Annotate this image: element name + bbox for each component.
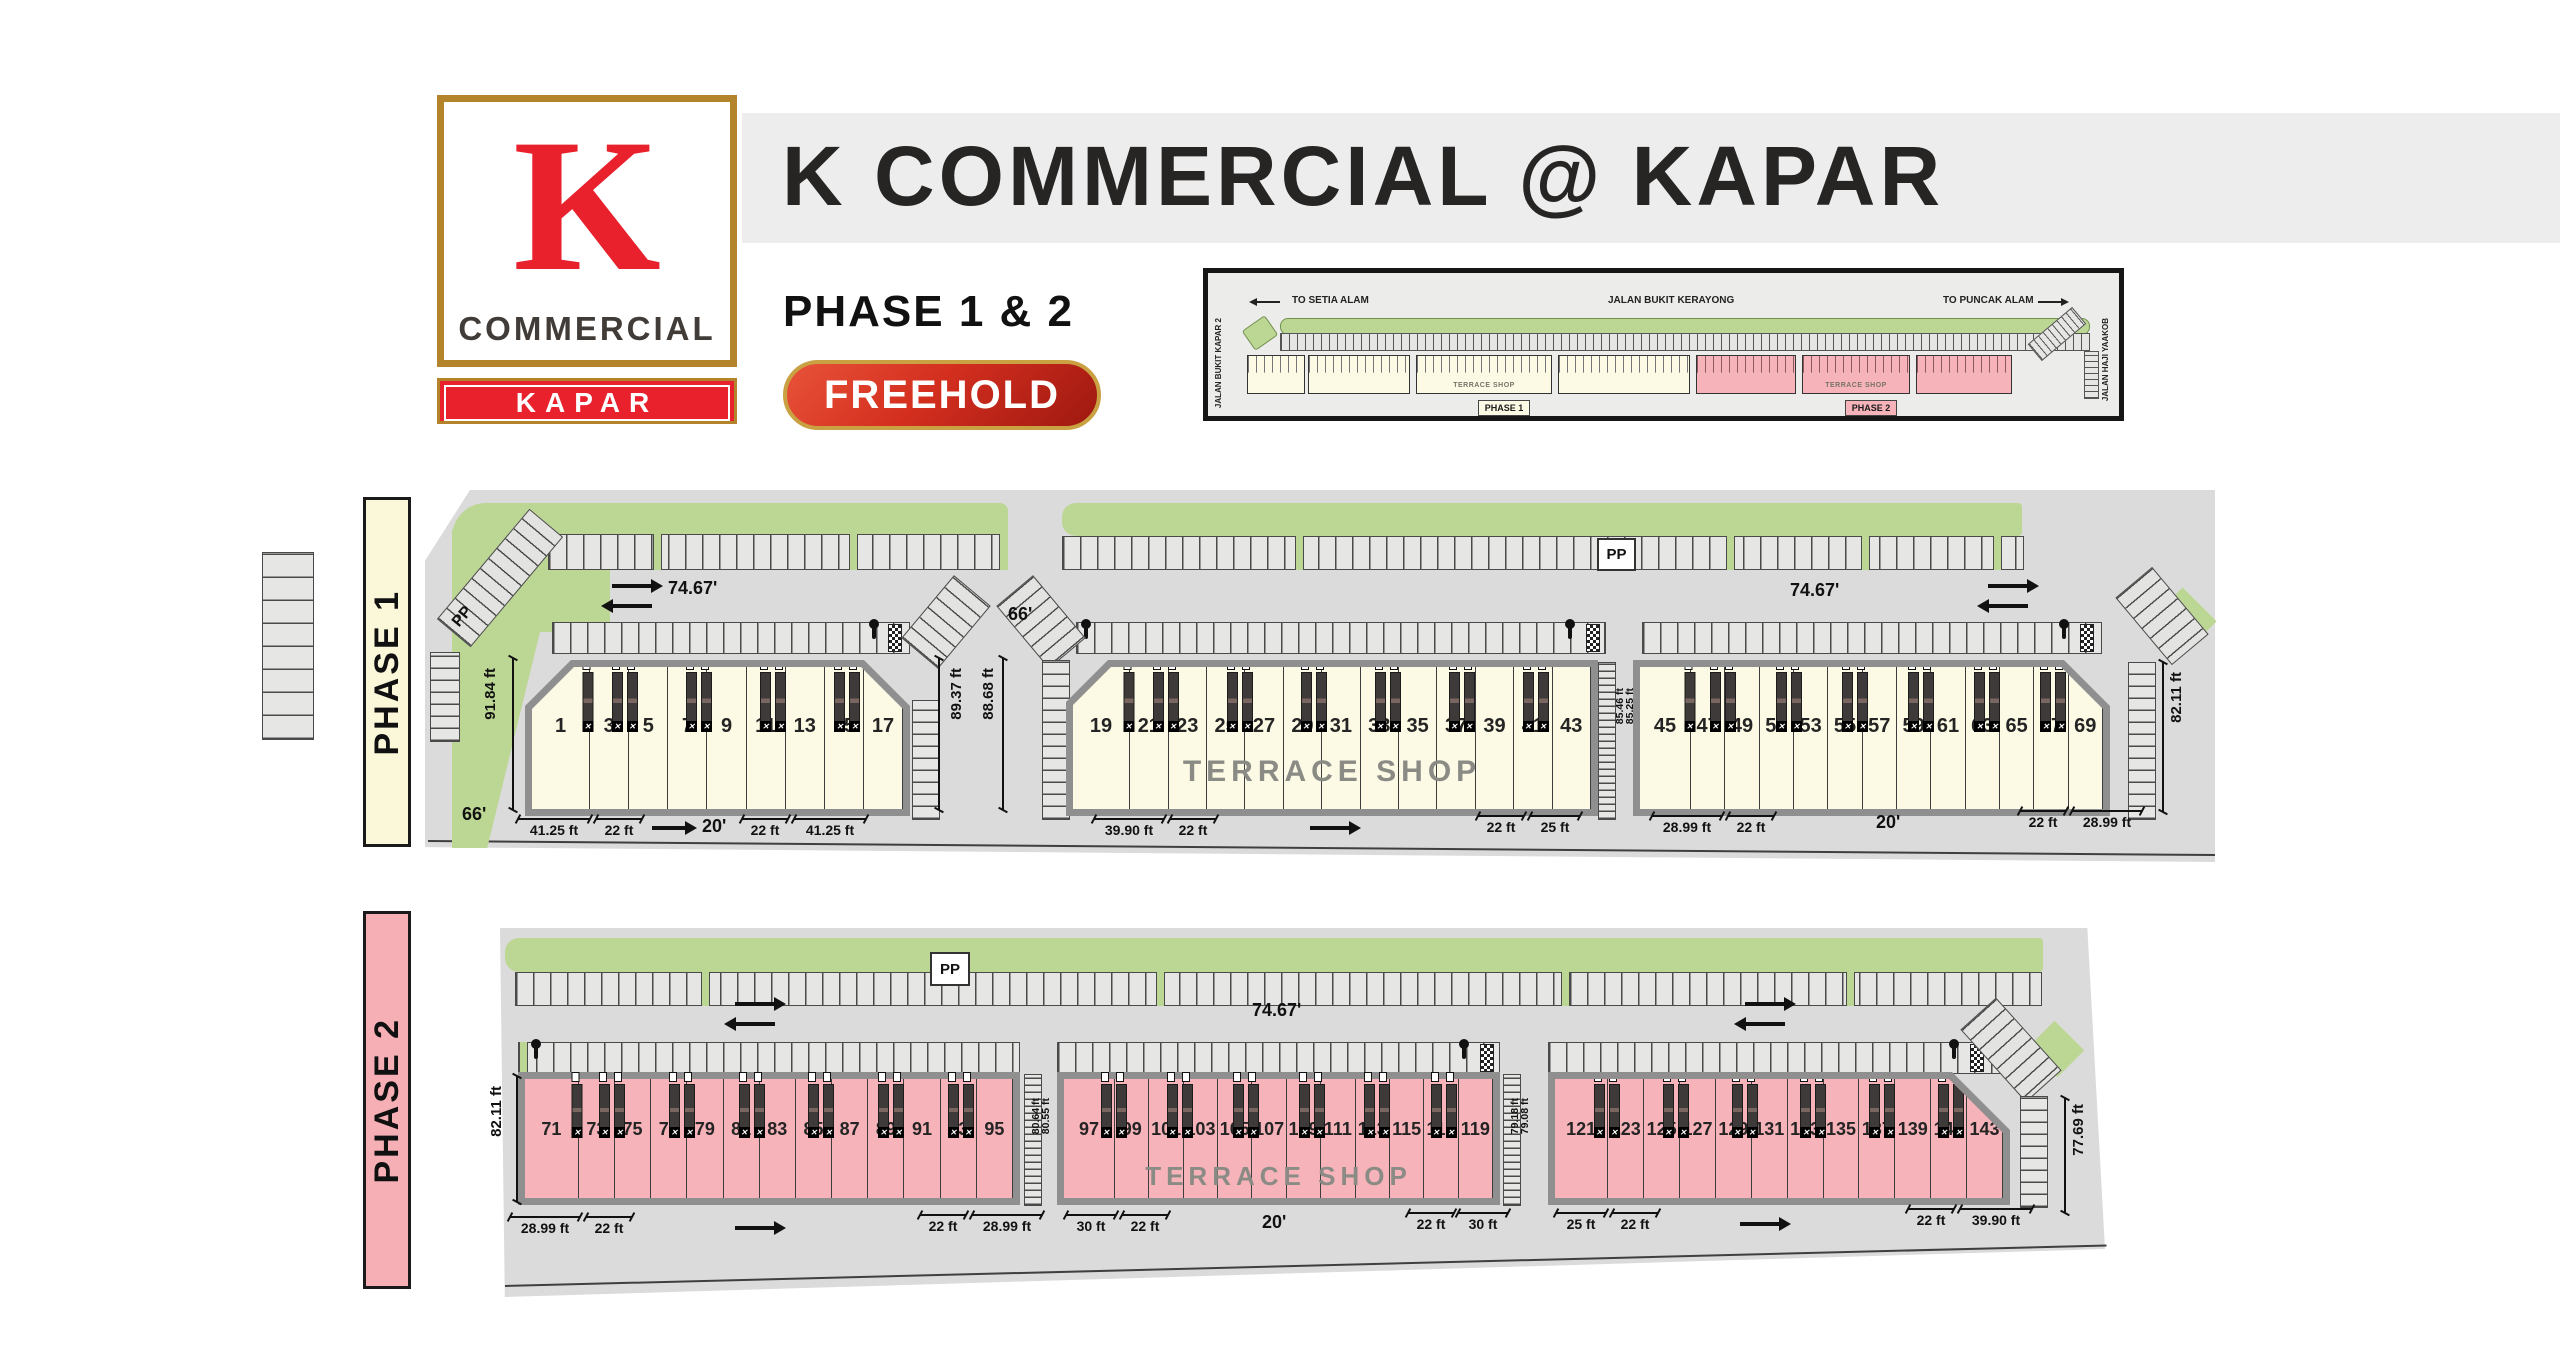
staircase-icon: [1123, 672, 1134, 730]
terrace-shop-label-phase1: TERRACE SHOP: [1073, 755, 1591, 789]
terrace-block-lots-121-143: 121123125127129131133135137139141143: [1548, 1072, 2010, 1205]
phase1-parking-row-top-left: [548, 534, 1000, 570]
staircase-icon: [1732, 1084, 1758, 1136]
staircase-icon: [878, 1084, 904, 1136]
dim: 22 ft: [1408, 1212, 1454, 1232]
phase2-vdim-8055: 80.55 ft: [1040, 1098, 1052, 1134]
staircase-icon: [739, 1084, 765, 1136]
phase1-road-width: 74.67': [668, 578, 717, 599]
dim: 22 ft: [2020, 810, 2066, 830]
road-arrow-right: [1988, 584, 2028, 588]
staircase-icon: [612, 672, 638, 730]
staircase-icon: [1663, 1084, 1689, 1136]
lamp-icon: [1568, 626, 1572, 639]
dim: 41.25 ft: [794, 818, 866, 838]
lot-number: 87: [832, 1119, 867, 1140]
dim: 25 ft: [1530, 815, 1580, 835]
phase1-ladder-right: [2128, 662, 2156, 820]
phase1-parking-row-top-right: [1062, 536, 2024, 570]
lot-number: 139: [1895, 1119, 1930, 1140]
dim: 39.90 ft: [1960, 1208, 2032, 1228]
terrace-block-lots-1-17: 1357911131517: [525, 660, 910, 816]
lot-9: 9: [707, 667, 746, 809]
staircase-icon: [1299, 1084, 1325, 1136]
page-title: K COMMERCIAL @ KAPAR: [782, 128, 1944, 225]
dim: 28.99 ft: [510, 1216, 580, 1236]
staircase-icon: [599, 1084, 625, 1136]
dim: 28.99 ft: [972, 1214, 1042, 1234]
staircase-icon: [2040, 672, 2066, 730]
lot-number: 83: [760, 1119, 795, 1140]
road-arrow-right: [1745, 1002, 1785, 1006]
lot-number: 91: [904, 1119, 939, 1140]
dim: 22 ft: [1478, 815, 1524, 835]
staircase-icon: [1233, 1084, 1259, 1136]
inset-block-cream-2: TERRACE SHOP: [1416, 355, 1552, 394]
east-arrow-icon: [2038, 301, 2062, 303]
green-divider: [1726, 536, 1735, 570]
staircase-icon: [1684, 672, 1695, 730]
dim: 22 ft: [586, 1216, 632, 1236]
inset-block-pink-1: [1696, 355, 1796, 394]
phase1-vdim-8211: 82.11 ft: [2168, 672, 2185, 723]
staircase-icon: [1974, 672, 2000, 730]
dim: 22 ft: [1908, 1208, 1954, 1228]
staircase-icon: [686, 672, 712, 730]
staircase-icon: [1153, 672, 1179, 730]
lot-number: 1: [532, 715, 589, 738]
green-divider: [1295, 536, 1304, 570]
inset-phase1-badge: PHASE 1: [1478, 400, 1530, 416]
dim: 22 ft: [920, 1214, 966, 1234]
staircase-icon: [1301, 672, 1327, 730]
phase1-ladder-arm: [430, 652, 460, 742]
staircase-icon: [1449, 672, 1475, 730]
phase1-vdim-9184: 91.84 ft: [482, 668, 499, 720]
inset-road-jalan-haji-yaakob: JALAN HAJI YAAKOB: [2101, 318, 2110, 401]
staircase-icon: [1800, 1084, 1826, 1136]
staircase-icon: [1776, 672, 1802, 730]
lot-87: 87: [832, 1079, 868, 1198]
terrace-block-lots-71-95: 71737577798183858789919395: [518, 1072, 1020, 1205]
phase2-vdim-7908: 79.08 ft: [1519, 1098, 1531, 1134]
dim: 22 ft: [596, 818, 642, 838]
terrace-block-lots-97-119: 9799101103105107109111113115117119 TERRA…: [1057, 1072, 1500, 1205]
phase1-b1-frontage: 20': [702, 816, 726, 837]
phase1-b3-frontage: 20': [1876, 812, 1900, 833]
checker-marker: [2080, 624, 2094, 652]
dim: 39.90 ft: [1094, 818, 1164, 838]
phase1-tag: PHASE 1: [363, 497, 411, 847]
phase1-66ft-top: 66': [1008, 604, 1032, 625]
road-arrow-left: [612, 604, 652, 608]
lot-95: 95: [977, 1079, 1013, 1198]
phase1-green-topright: [1062, 503, 2022, 536]
dim: 22 ft: [1122, 1214, 1168, 1234]
lamp-icon: [1952, 1046, 1956, 1059]
vdim-line: [1002, 658, 1004, 810]
dim: 30 ft: [1458, 1212, 1508, 1232]
phase2-green-top: [505, 938, 2043, 972]
lot-139: 139: [1895, 1079, 1931, 1198]
lot-135: 135: [1824, 1079, 1860, 1198]
phase1-vdim-8937: 89.37 ft: [948, 668, 965, 720]
lot-number: 135: [1824, 1119, 1859, 1140]
green-divider: [519, 1042, 528, 1074]
staircase-icon: [572, 1084, 583, 1136]
inset-terrace-shop-label: TERRACE SHOP: [1453, 382, 1515, 389]
phase2-b5-frontage: 20': [1262, 1212, 1286, 1233]
inset-parking-row: [1280, 333, 2090, 351]
lot-number: 13: [786, 715, 824, 738]
logo: K COMMERCIAL: [437, 95, 737, 367]
checker-marker: [888, 624, 902, 652]
kapar-badge-label: KAPAR: [444, 385, 730, 421]
inset-block-cream-1: [1308, 355, 1410, 394]
lot-number: 115: [1390, 1119, 1423, 1140]
lot-number: 69: [2069, 715, 2102, 738]
phase1-vdim-8868: 88.68 ft: [980, 668, 997, 720]
staircase-icon: [1842, 672, 1868, 730]
dim: 22 ft: [1170, 818, 1216, 838]
lot-number: 39: [1476, 715, 1513, 738]
inset-road-to-setia-alam: TO SETIA ALAM: [1292, 295, 1369, 306]
inset-terrace-shop-label-2: TERRACE SHOP: [1825, 382, 1887, 389]
phase1-vdim-8525: 85.25 ft: [1624, 688, 1636, 724]
site-plan-canvas: K COMMERCIAL @ KAPAR K COMMERCIAL KAPAR …: [0, 0, 2560, 1365]
lot-number: 119: [1459, 1119, 1492, 1140]
kapar-badge: KAPAR: [437, 378, 737, 424]
frontage-arrow: [652, 826, 686, 830]
terrace-block-lots-45-69: 45474951535557596163656769: [1633, 660, 2110, 816]
lamp-icon: [2062, 626, 2066, 639]
dim: 22 ft: [742, 818, 788, 838]
lot-number: 19: [1073, 715, 1129, 738]
staircase-icon: [808, 1084, 834, 1136]
staircase-icon: [760, 672, 786, 730]
phase1-parking-row-block1: [552, 622, 910, 654]
lot-number: 65: [2000, 715, 2033, 738]
vdim-line: [2064, 1098, 2066, 1213]
staircase-icon: [1869, 1084, 1895, 1136]
inset-road-to-puncak-alam: TO PUNCAK ALAM: [1943, 295, 2034, 306]
logo-k-letter: K: [444, 116, 730, 296]
staircase-icon: [1167, 1084, 1193, 1136]
phase2-ladder-gap2: [1503, 1074, 1521, 1206]
inset-side-parking: [2084, 351, 2099, 399]
green-divider: [1561, 972, 1570, 1006]
lot-number: 17: [864, 715, 902, 738]
dim: 30 ft: [1066, 1214, 1116, 1234]
phases-heading: PHASE 1 & 2: [783, 287, 1074, 337]
staircase-icon: [1431, 1084, 1457, 1136]
checker-marker: [1480, 1044, 1494, 1072]
green-divider: [849, 534, 858, 570]
terrace-block-lots-19-43: 19212325272931333537394143 TERRACE SHOP: [1066, 660, 1598, 816]
lot-65: 65: [2000, 667, 2034, 809]
phase2-ladder-gap1: [1024, 1074, 1042, 1206]
lot-91: 91: [904, 1079, 940, 1198]
dim: 22 ft: [1728, 815, 1774, 835]
lamp-icon: [1462, 1046, 1466, 1059]
inset-block-pink-3: [1916, 355, 2012, 394]
phase2-tag-label: PHASE 2: [368, 1017, 407, 1184]
lot-number: 61: [1931, 715, 1964, 738]
staircase-icon: [1375, 672, 1401, 730]
lot-number: 35: [1399, 715, 1436, 738]
green-divider: [1846, 972, 1855, 1006]
green-divider: [1861, 536, 1870, 570]
staircase-icon: [948, 1084, 974, 1136]
lot-61: 61: [1931, 667, 1965, 809]
vdim-line: [512, 658, 514, 810]
inset-green-wedge: [1242, 315, 1279, 351]
inset-road-jalan-bukit-kerayong: JALAN BUKIT KERAYONG: [1608, 295, 1734, 306]
green-divider: [653, 534, 662, 570]
logo-word: COMMERCIAL: [444, 310, 730, 348]
lot-number: 43: [1553, 715, 1590, 738]
lot-number: 95: [977, 1119, 1012, 1140]
vdim-line: [516, 1076, 518, 1202]
checker-marker: [1586, 624, 1600, 652]
freehold-badge: FREEHOLD: [783, 360, 1101, 430]
phase2-parking-row-block5: [1057, 1042, 1500, 1074]
frontage-arrow: [735, 1226, 775, 1230]
dim: 25 ft: [1556, 1212, 1606, 1232]
phase1-road-width-2: 74.67': [1790, 580, 1839, 601]
lot-number: 111: [1321, 1119, 1354, 1140]
green-divider: [1156, 972, 1165, 1006]
phase1-parking-row-block2: [1076, 622, 1606, 654]
phase2-parking-row-block6: [1548, 1042, 2010, 1074]
staircase-icon: [1364, 1084, 1390, 1136]
phase1-pp-box: PP: [1597, 538, 1636, 571]
road-arrow-left: [735, 1022, 775, 1026]
phase2-pp-box: PP: [930, 952, 970, 986]
staircase-icon: [582, 672, 593, 730]
phase1-tag-label: PHASE 1: [368, 589, 407, 756]
lamp-icon: [872, 626, 876, 639]
lot-number: 143: [1967, 1119, 2002, 1140]
west-arrow-icon: [1256, 301, 1280, 303]
phase1-parking-row-block3: [1642, 622, 2102, 654]
dim: 28.99 ft: [2072, 810, 2142, 830]
inset-phase2-badge: PHASE 2: [1845, 400, 1897, 416]
terrace-shop-label-phase2: TERRACE SHOP: [1064, 1161, 1493, 1192]
inset-block-cream-3: [1558, 355, 1690, 394]
phase2-ladder-right: [2020, 1096, 2048, 1208]
staircase-icon: [669, 1084, 695, 1136]
phase2-vdim-7769: 77.69 ft: [2070, 1104, 2087, 1156]
green-divider: [701, 972, 710, 1006]
phase1-street-parking-left: [262, 552, 314, 740]
staircase-icon: [1710, 672, 1736, 730]
road-arrow-left: [1745, 1022, 1785, 1026]
green-divider: [1993, 536, 2002, 570]
road-arrow-left: [1988, 604, 2028, 608]
inset-road-jalan-bukit-kapar-2: JALAN BUKIT KAPAR 2: [1214, 318, 1223, 408]
phase2-tag: PHASE 2: [363, 911, 411, 1289]
phase2-parking-row-block4: [518, 1042, 1020, 1074]
dim: 22 ft: [1612, 1212, 1658, 1232]
vdim-line: [2162, 662, 2164, 812]
lamp-icon: [534, 1046, 538, 1059]
staircase-icon: [1938, 1084, 1964, 1136]
road-arrow-right: [735, 1002, 775, 1006]
frontage-arrow: [1740, 1222, 1780, 1226]
inset-block-cream-small: [1247, 355, 1305, 394]
staircase-icon: [834, 672, 860, 730]
inset-block-pink-2: TERRACE SHOP: [1802, 355, 1910, 394]
staircase-icon: [1101, 1084, 1127, 1136]
staircase-icon: [1227, 672, 1253, 730]
phase2-vdim-8211: 82.11 ft: [488, 1086, 505, 1137]
road-arrow-right: [612, 584, 652, 588]
dim: 28.99 ft: [1652, 815, 1722, 835]
staircase-icon: [1908, 672, 1934, 730]
staircase-icon: [1523, 672, 1549, 730]
lot-number: 31: [1322, 715, 1359, 738]
lot-number: 9: [707, 715, 745, 738]
lot-number: 71: [525, 1119, 578, 1140]
lot-number: 45: [1640, 715, 1690, 738]
dim: 41.25 ft: [518, 818, 590, 838]
lot-13: 13: [786, 667, 825, 809]
frontage-arrow: [1310, 826, 1350, 830]
phase2-road-width: 74.67': [1252, 1000, 1301, 1021]
phase1-ladder-gap1-left: [912, 700, 940, 820]
lot-83: 83: [760, 1079, 796, 1198]
phase1-66ft-left: 66': [462, 804, 486, 825]
staircase-icon: [1594, 1084, 1620, 1136]
lot-71: 71: [525, 1079, 579, 1198]
phase1-ladder-gap1-right: [1042, 660, 1070, 820]
vdim-line: [938, 658, 940, 810]
inset-location-map: TO SETIA ALAM JALAN BUKIT KERAYONG TO PU…: [1203, 268, 2124, 421]
phase1-ladder-gap2: [1598, 662, 1616, 820]
